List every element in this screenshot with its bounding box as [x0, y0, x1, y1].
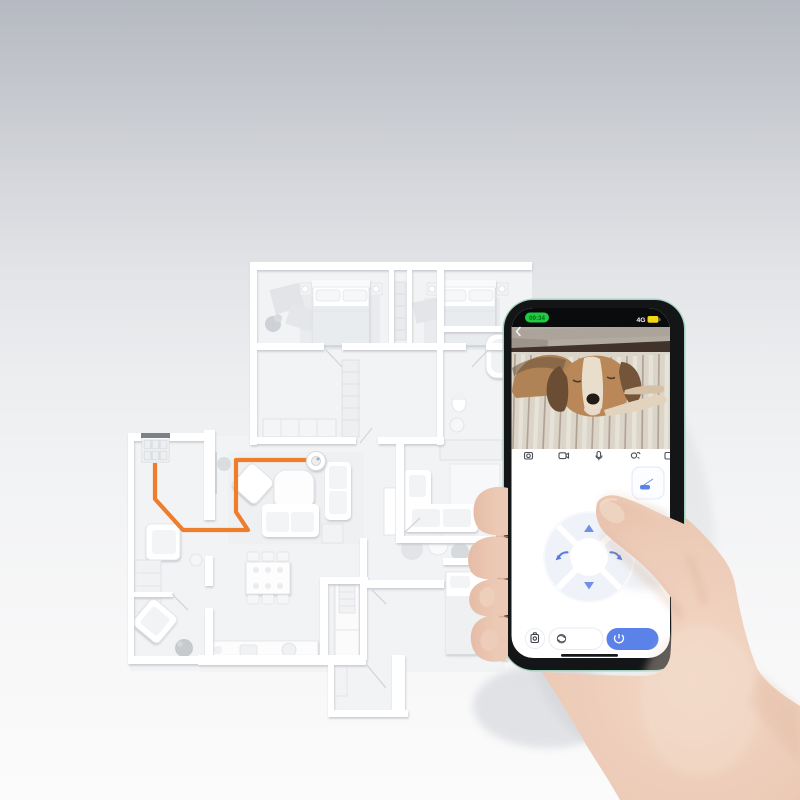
svg-text:4G: 4G	[636, 317, 645, 324]
svg-text:09:34: 09:34	[529, 315, 545, 322]
